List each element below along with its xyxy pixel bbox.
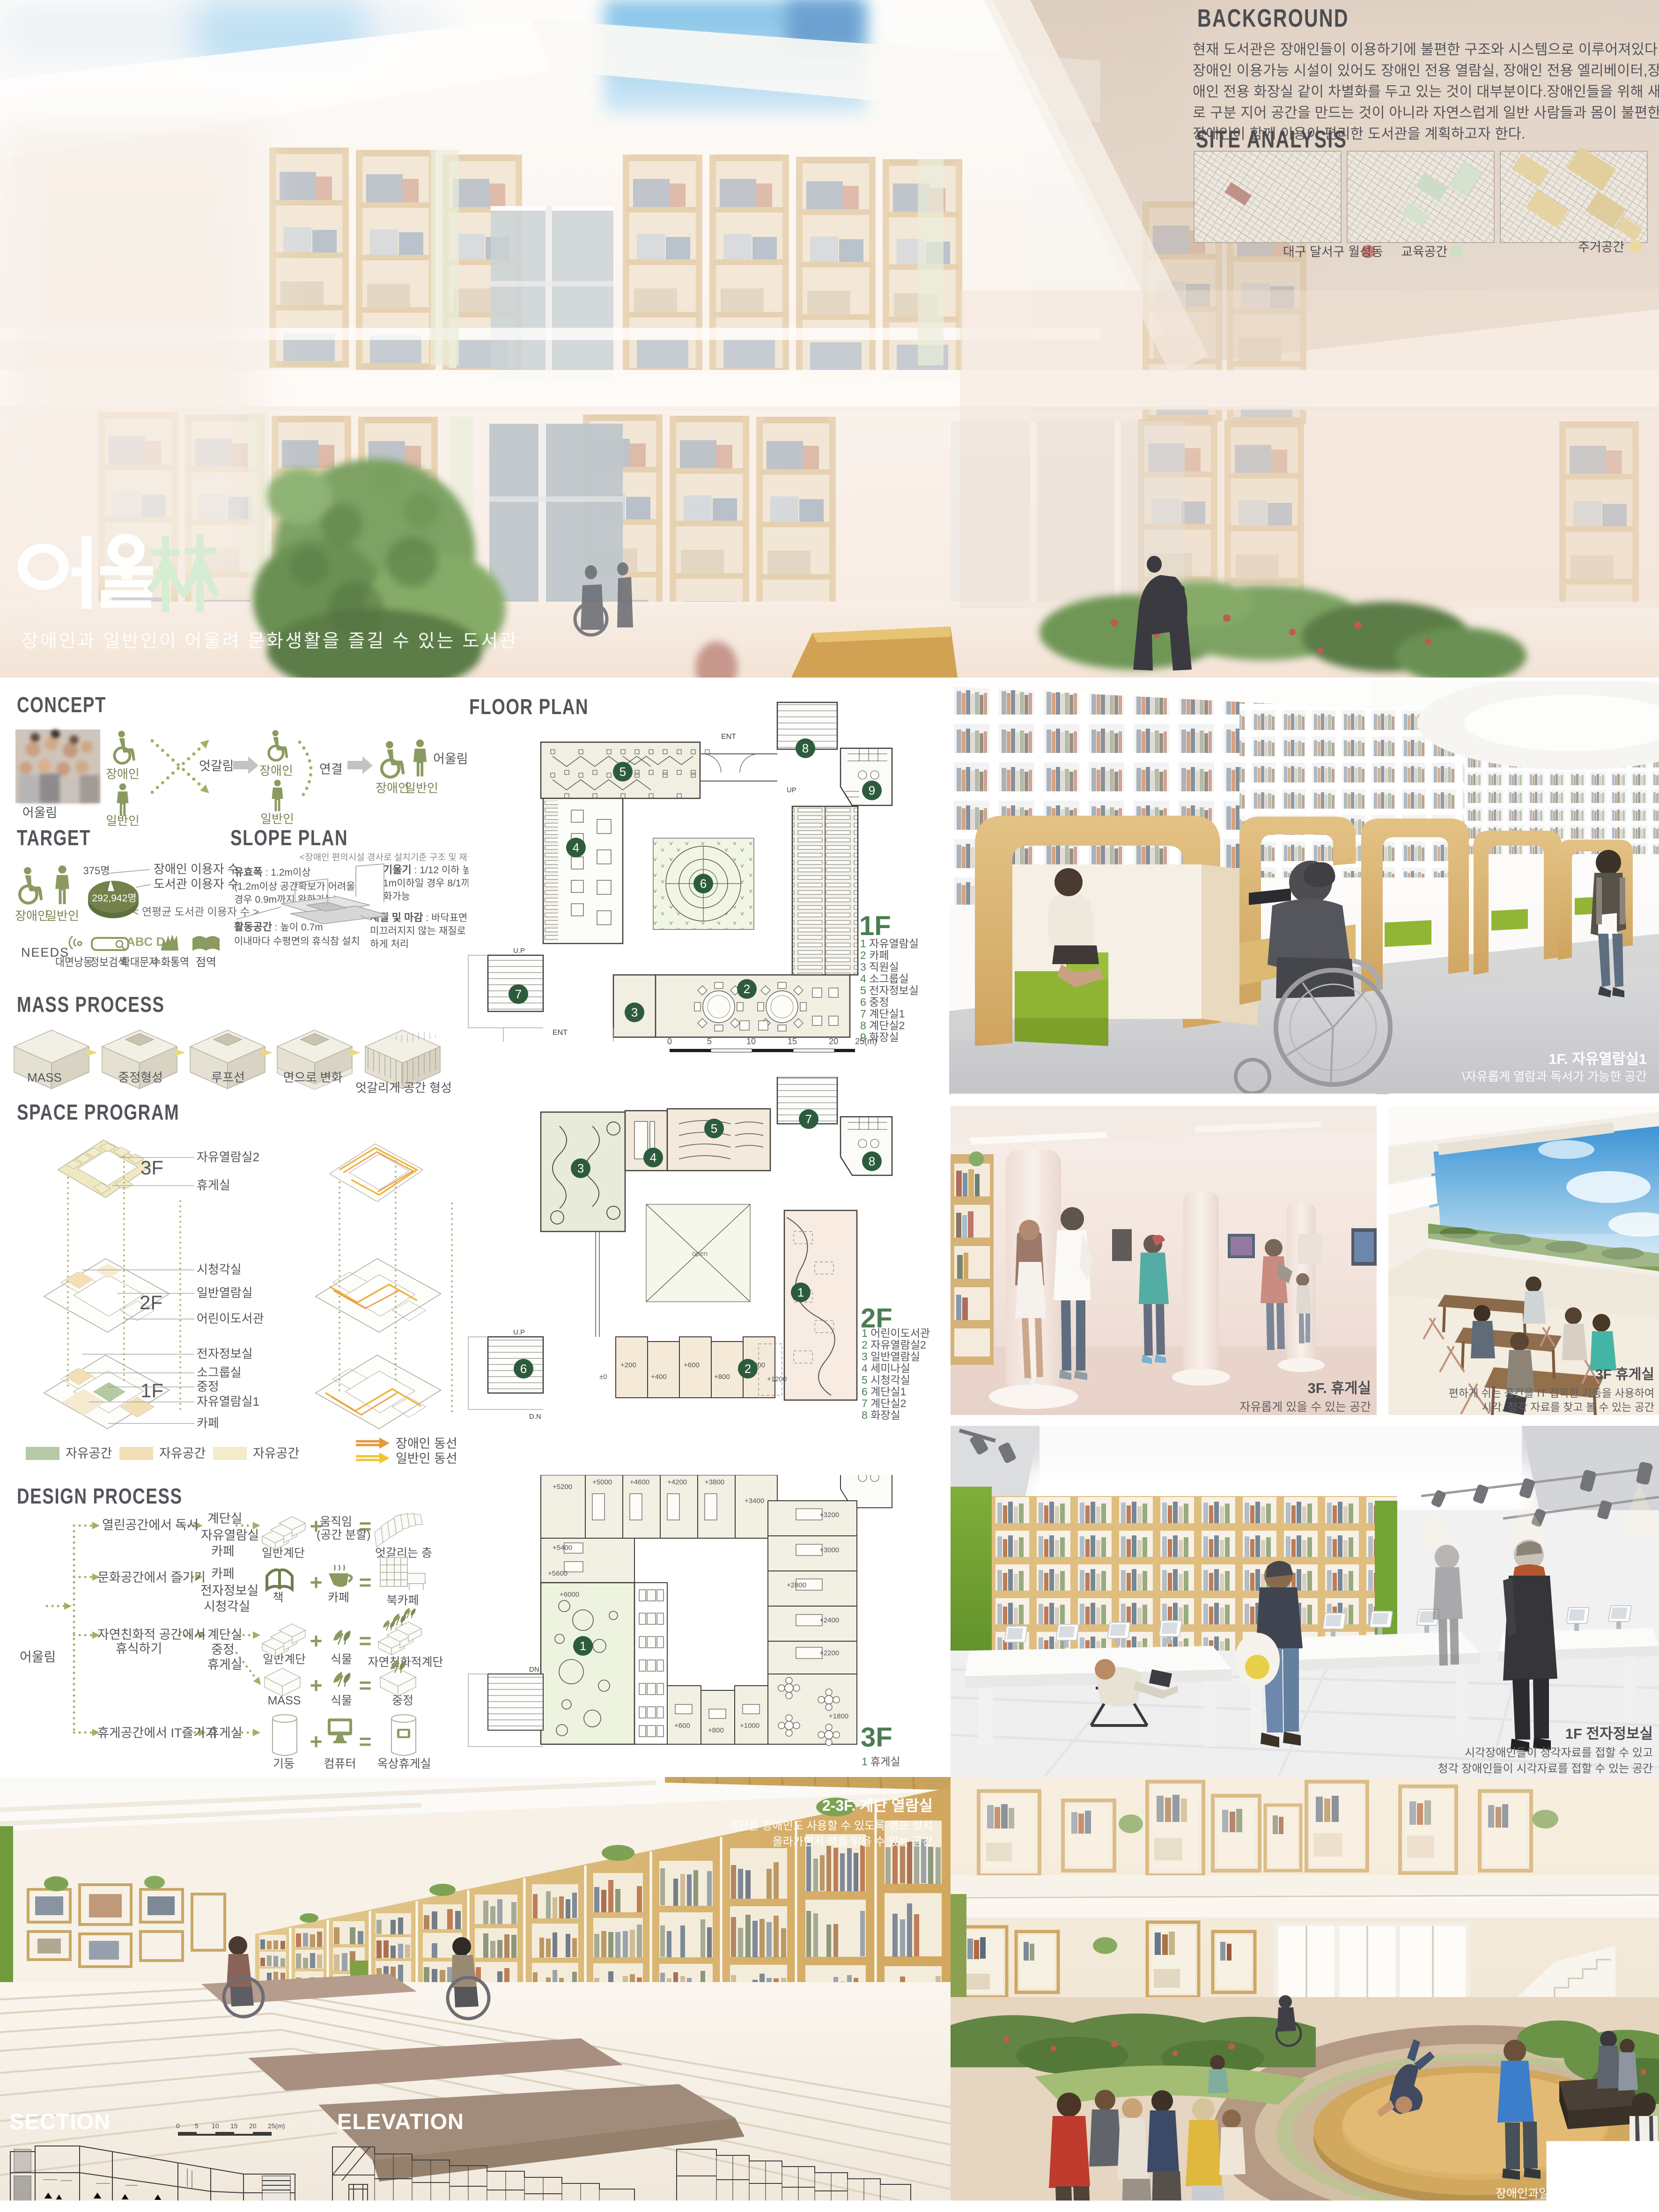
svg-text:8: 8	[869, 1154, 875, 1168]
svg-text:+6000: +6000	[560, 1591, 579, 1599]
svg-text:ENT: ENT	[553, 1029, 568, 1037]
svg-text:휴게실: 휴게실	[207, 1726, 243, 1740]
svg-text:+3400: +3400	[745, 1497, 764, 1505]
svg-text:2 카페: 2 카페	[860, 949, 889, 961]
svg-text:재질 및 마감 : 바닥표면은: 재질 및 마감 : 바닥표면은	[370, 912, 468, 923]
svg-text:일반인: 일반인	[260, 812, 294, 826]
svg-text:8 화장실: 8 화장실	[862, 1409, 900, 1421]
svg-text:6: 6	[520, 1362, 527, 1376]
svg-text:1 휴게실: 1 휴게실	[862, 1755, 900, 1768]
svg-text:점역: 점역	[196, 956, 216, 969]
svg-text:4: 4	[573, 841, 579, 855]
svg-text:+2400: +2400	[819, 1616, 839, 1624]
svg-text:7 계단실1: 7 계단실1	[860, 1008, 905, 1020]
svg-text:일반인: 일반인	[45, 909, 79, 923]
svg-text:5: 5	[711, 1121, 717, 1135]
svg-text:수화통역: 수화통역	[152, 956, 189, 969]
svg-text:8: 8	[802, 741, 809, 755]
svg-text:5: 5	[195, 2122, 199, 2130]
svg-text:어울림: 어울림	[20, 1650, 56, 1664]
svg-text:9: 9	[869, 783, 875, 797]
svg-text:\자유롭게 열람과 독서가 가능한 공간: \자유롭게 열람과 독서가 가능한 공간	[1462, 1069, 1647, 1084]
svg-text:15: 15	[230, 2122, 238, 2130]
svg-text:7: 7	[515, 987, 522, 1001]
svg-text:DN: DN	[529, 1666, 539, 1674]
svg-text:문화생활을 즐길 수 있는 공간: 문화생활을 즐길 수 있는 공간	[1511, 2201, 1653, 2212]
svg-text:UP: UP	[787, 786, 796, 794]
svg-text:계단실: 계단실	[207, 1512, 243, 1526]
svg-text:장애인: 장애인	[106, 767, 140, 781]
svg-text:+: +	[310, 1673, 323, 1697]
svg-text:3F 휴게실: 3F 휴게실	[1595, 1367, 1654, 1382]
svg-text:+200: +200	[620, 1361, 636, 1369]
svg-text:ABC D: ABC D	[126, 935, 165, 949]
svg-text:+: +	[310, 1629, 323, 1653]
svg-text:편하게 쉬는 공간을 IT 접목한 기둥을 사용하여: 편하게 쉬는 공간을 IT 접목한 기둥을 사용하여	[1449, 1387, 1654, 1399]
svg-text:면으로 변화: 면으로 변화	[283, 1070, 343, 1084]
svg-text:컴퓨터: 컴퓨터	[324, 1757, 356, 1770]
svg-text:=: =	[359, 1673, 372, 1697]
svg-text:식물: 식물	[331, 1694, 352, 1707]
svg-text:+1800: +1800	[829, 1712, 848, 1720]
svg-text:+5200: +5200	[553, 1483, 572, 1491]
svg-text:2: 2	[744, 982, 750, 996]
svg-text:계단실: 계단실	[207, 1628, 243, 1642]
svg-text:2 자유열람실2: 2 자유열람실2	[862, 1339, 926, 1351]
svg-text:+: +	[310, 1729, 323, 1754]
svg-text:292,942명: 292,942명	[92, 893, 136, 904]
svg-text:3 직원실: 3 직원실	[860, 961, 899, 973]
svg-text:일반열람실: 일반열람실	[197, 1286, 253, 1300]
svg-text:+1200: +1200	[767, 1375, 787, 1383]
svg-text:카페: 카페	[211, 1567, 235, 1581]
svg-text:일반계단: 일반계단	[262, 1547, 305, 1560]
svg-text:+3800: +3800	[705, 1478, 724, 1486]
svg-text:자유열람실1: 자유열람실1	[197, 1394, 259, 1408]
svg-text:7 계단실2: 7 계단실2	[862, 1397, 906, 1409]
svg-text:문화공간에서 즐기기: 문화공간에서 즐기기	[97, 1571, 206, 1585]
svg-text:카페: 카페	[328, 1591, 349, 1604]
svg-text:일반인: 일반인	[106, 814, 140, 828]
svg-text:+600: +600	[674, 1722, 690, 1730]
svg-text:열린공간에서 독서: 열린공간에서 독서	[102, 1518, 199, 1532]
svg-text:+5600: +5600	[548, 1570, 568, 1578]
svg-text:10: 10	[746, 1037, 756, 1046]
svg-text:1F. 자유열람실1: 1F. 자유열람실1	[1548, 1051, 1647, 1067]
svg-text:휴식하기: 휴식하기	[116, 1642, 162, 1656]
svg-text:+4600: +4600	[630, 1478, 649, 1486]
svg-text:어울림: 어울림	[22, 806, 58, 820]
svg-text:25(m): 25(m)	[855, 1037, 877, 1046]
svg-text:시청각실: 시청각실	[197, 1262, 242, 1276]
svg-text:U.P: U.P	[513, 947, 525, 955]
svg-text:20: 20	[249, 2122, 257, 2130]
svg-text:전자정보실: 전자정보실	[197, 1347, 253, 1361]
svg-text:장애인: 장애인	[259, 764, 293, 778]
svg-text:+3000: +3000	[819, 1546, 839, 1554]
svg-text:1: 1	[580, 1639, 586, 1653]
svg-text:자유공간: 자유공간	[253, 1446, 299, 1460]
svg-text:시청각실: 시청각실	[204, 1600, 250, 1614]
svg-text:옥상휴게실: 옥상휴게실	[377, 1757, 431, 1770]
svg-text:<장애인 편의시설 경사로 설치기준 구조 및 재질등에: <장애인 편의시설 경사로 설치기준 구조 및 재질등에 관한 세부사항>	[300, 852, 468, 863]
svg-text:시각장애인들이 청각자료를 접할 수 있고: 시각장애인들이 청각자료를 접할 수 있고	[1465, 1747, 1653, 1759]
svg-text:+5400: +5400	[553, 1544, 572, 1552]
svg-text:375명: 375명	[83, 865, 110, 877]
svg-text:5 시청각실: 5 시청각실	[862, 1374, 910, 1386]
svg-text:북카페: 북카페	[386, 1594, 419, 1607]
svg-text:+600: +600	[684, 1361, 700, 1369]
svg-text:7: 7	[805, 1112, 812, 1126]
svg-text:3F: 3F	[140, 1157, 163, 1179]
svg-text:시각. 청각 자료를 찾고 볼 수 있는 공간: 시각. 청각 자료를 찾고 볼 수 있는 공간	[1482, 1401, 1654, 1413]
svg-text:화가능: 화가능	[383, 891, 410, 902]
svg-text:일반인: 일반인	[405, 781, 438, 795]
svg-text:휴게실: 휴게실	[197, 1178, 230, 1192]
svg-text:장애인 이용자 수: 장애인 이용자 수	[154, 862, 239, 876]
svg-text:교육공간: 교육공간	[1401, 245, 1447, 259]
svg-text:2: 2	[745, 1362, 751, 1376]
svg-text:대구 달서구 월성동: 대구 달서구 월성동	[1283, 245, 1383, 259]
svg-text:휴게실: 휴게실	[207, 1658, 243, 1672]
svg-text:5: 5	[619, 765, 626, 779]
svg-text:책: 책	[273, 1591, 283, 1604]
svg-text:자유공간: 자유공간	[159, 1446, 206, 1460]
svg-text:자유열람실: 자유열람실	[201, 1528, 259, 1542]
svg-text:4: 4	[650, 1150, 656, 1165]
svg-text:8 계단실2: 8 계단실2	[860, 1019, 905, 1032]
svg-text:(공간 분할): (공간 분할)	[317, 1528, 371, 1541]
svg-text:2F: 2F	[140, 1291, 162, 1313]
svg-text:0: 0	[667, 1037, 672, 1046]
svg-text:연결: 연결	[319, 762, 343, 776]
svg-text:3: 3	[631, 1005, 638, 1019]
svg-text:25(m): 25(m)	[268, 2122, 285, 2130]
svg-text:기울기 : 1/12 이하 높이가: 기울기 : 1/12 이하 높이가	[383, 864, 468, 876]
svg-text:청각 장애인들이 시각자료를 접할 수 있는 공간: 청각 장애인들이 시각자료를 접할 수 있는 공간	[1438, 1762, 1653, 1775]
svg-text:이내마다 수평면의 휴식참 설치: 이내마다 수평면의 휴식참 설치	[234, 936, 360, 947]
svg-text:자유열람실2: 자유열람실2	[197, 1150, 259, 1164]
svg-text:대면낭동: 대면낭동	[55, 956, 93, 969]
svg-text:D.N: D.N	[529, 1413, 541, 1421]
svg-text:ENT: ENT	[721, 733, 736, 741]
svg-text:+: +	[310, 1570, 323, 1594]
svg-text:+2800: +2800	[787, 1581, 806, 1589]
svg-text:카페: 카페	[197, 1416, 219, 1430]
svg-text:중정: 중정	[211, 1643, 235, 1657]
svg-text:장애인: 장애인	[376, 781, 409, 795]
svg-text:유효폭 : 1.2m이상: 유효폭 : 1.2m이상	[234, 866, 311, 878]
svg-text:소그룹실: 소그룹실	[197, 1365, 242, 1379]
svg-text:도서관 이용자 수: 도서관 이용자 수	[154, 877, 239, 891]
svg-text:1F: 1F	[859, 911, 891, 941]
svg-text:+800: +800	[714, 1373, 730, 1381]
svg-text:ELEVATION: ELEVATION	[337, 2109, 464, 2134]
svg-text:움직임: 움직임	[320, 1515, 352, 1528]
svg-text:open: open	[692, 1250, 708, 1258]
svg-text:1: 1	[797, 1285, 804, 1299]
svg-text:휴게공간에서 IT즐기기: 휴게공간에서 IT즐기기	[97, 1726, 217, 1740]
svg-text:1 어린이도서관: 1 어린이도서관	[862, 1327, 930, 1339]
svg-text:자유롭게 있을 수 있는 공간: 자유롭게 있을 수 있는 공간	[1239, 1401, 1371, 1414]
svg-text:일반계단: 일반계단	[263, 1653, 306, 1666]
svg-text:=: =	[359, 1570, 372, 1594]
svg-text:3 일반열람실: 3 일반열람실	[862, 1350, 920, 1363]
svg-text:중정: 중정	[197, 1379, 219, 1394]
svg-text:하게 처리: 하게 처리	[370, 939, 409, 950]
svg-text:3: 3	[577, 1161, 584, 1175]
svg-text:+400: +400	[651, 1373, 667, 1381]
svg-text:2-3F. 계단 열람실: 2-3F. 계단 열람실	[822, 1797, 933, 1814]
svg-text:4 소그룹실: 4 소그룹실	[860, 973, 909, 985]
svg-text:기둥: 기둥	[273, 1757, 295, 1770]
svg-text:5 전자정보실: 5 전자정보실	[860, 984, 919, 996]
svg-text:카페: 카페	[211, 1544, 235, 1558]
svg-text:1F 중정: 1F 중정	[1582, 2167, 1630, 2183]
svg-text:미끄러지지 않는 재질로 평탄: 미끄러지지 않는 재질로 평탄	[370, 926, 468, 936]
svg-text:1 자유열람실: 1 자유열람실	[860, 937, 919, 950]
svg-text:올라가면서 책을 읽을 수 있는 공간: 올라가면서 책을 읽을 수 있는 공간	[773, 1836, 933, 1848]
svg-text:U.P: U.P	[513, 1328, 525, 1336]
svg-text:어린이도서관: 어린이도서관	[197, 1312, 264, 1326]
svg-text:장애인: 장애인	[15, 909, 49, 923]
svg-text:1m이하일 경우 8/1까지 완: 1m이하일 경우 8/1까지 완	[383, 878, 468, 889]
svg-text:+4200: +4200	[667, 1478, 687, 1486]
svg-text:1F: 1F	[140, 1379, 163, 1401]
svg-text:+1000: +1000	[740, 1722, 759, 1730]
svg-text:0: 0	[176, 2122, 180, 2130]
svg-text:+800: +800	[708, 1726, 724, 1734]
svg-text:3F: 3F	[861, 1722, 892, 1753]
svg-text:4 세미나실: 4 세미나실	[862, 1362, 910, 1374]
svg-text:=: =	[359, 1629, 372, 1653]
svg-text:+5000: +5000	[592, 1478, 612, 1486]
svg-text:자유공간: 자유공간	[66, 1446, 112, 1460]
svg-text:MASS: MASS	[27, 1070, 62, 1084]
svg-text:=: =	[359, 1729, 372, 1754]
svg-text:장애인과일반인들과 함께 어울려: 장애인과일반인들과 함께 어울려	[1496, 2187, 1653, 2200]
svg-text:1F 전자정보실: 1F 전자정보실	[1565, 1725, 1653, 1742]
svg-text:일반인 동선: 일반인 동선	[396, 1452, 457, 1466]
svg-text:5: 5	[707, 1037, 712, 1046]
svg-text:6: 6	[700, 877, 707, 891]
svg-text:3F. 휴게실: 3F. 휴게실	[1307, 1380, 1371, 1396]
svg-text:식물: 식물	[331, 1653, 352, 1666]
svg-text:MASS: MASS	[268, 1694, 301, 1707]
svg-text:주거공간: 주거공간	[1578, 240, 1624, 254]
svg-text:계단을 장애인도 사용할 수 있도록 램프 설치: 계단을 장애인도 사용할 수 있도록 램프 설치	[728, 1820, 933, 1832]
svg-text:+2200: +2200	[819, 1649, 839, 1657]
svg-text:자연친화적 공간에서: 자연친화적 공간에서	[97, 1628, 206, 1642]
svg-text:루프선: 루프선	[211, 1070, 245, 1084]
svg-text:활동공간 : 높이 0.7m: 활동공간 : 높이 0.7m	[234, 921, 323, 933]
svg-text:10: 10	[212, 2122, 219, 2130]
svg-text:SECTION: SECTION	[9, 2109, 111, 2134]
svg-text:20: 20	[829, 1037, 838, 1046]
svg-text:장애인 동선: 장애인 동선	[396, 1437, 457, 1451]
svg-text:전자정보실: 전자정보실	[200, 1584, 258, 1598]
svg-text:중정형성: 중정형성	[118, 1070, 163, 1084]
svg-text:< 연평균 도서관 이용자 수 >: < 연평균 도서관 이용자 수 >	[133, 906, 259, 918]
svg-text:15: 15	[788, 1037, 797, 1046]
svg-text:6 중정: 6 중정	[860, 996, 889, 1008]
svg-text:엇갈리게 공간 형성: 엇갈리게 공간 형성	[355, 1081, 452, 1095]
svg-text:중정: 중정	[392, 1694, 413, 1707]
svg-text:+3200: +3200	[819, 1511, 839, 1519]
svg-text:±0: ±0	[599, 1373, 607, 1381]
svg-text:엇갈림: 엇갈림	[199, 759, 234, 773]
svg-text:6 계단실1: 6 계단실1	[862, 1386, 906, 1398]
